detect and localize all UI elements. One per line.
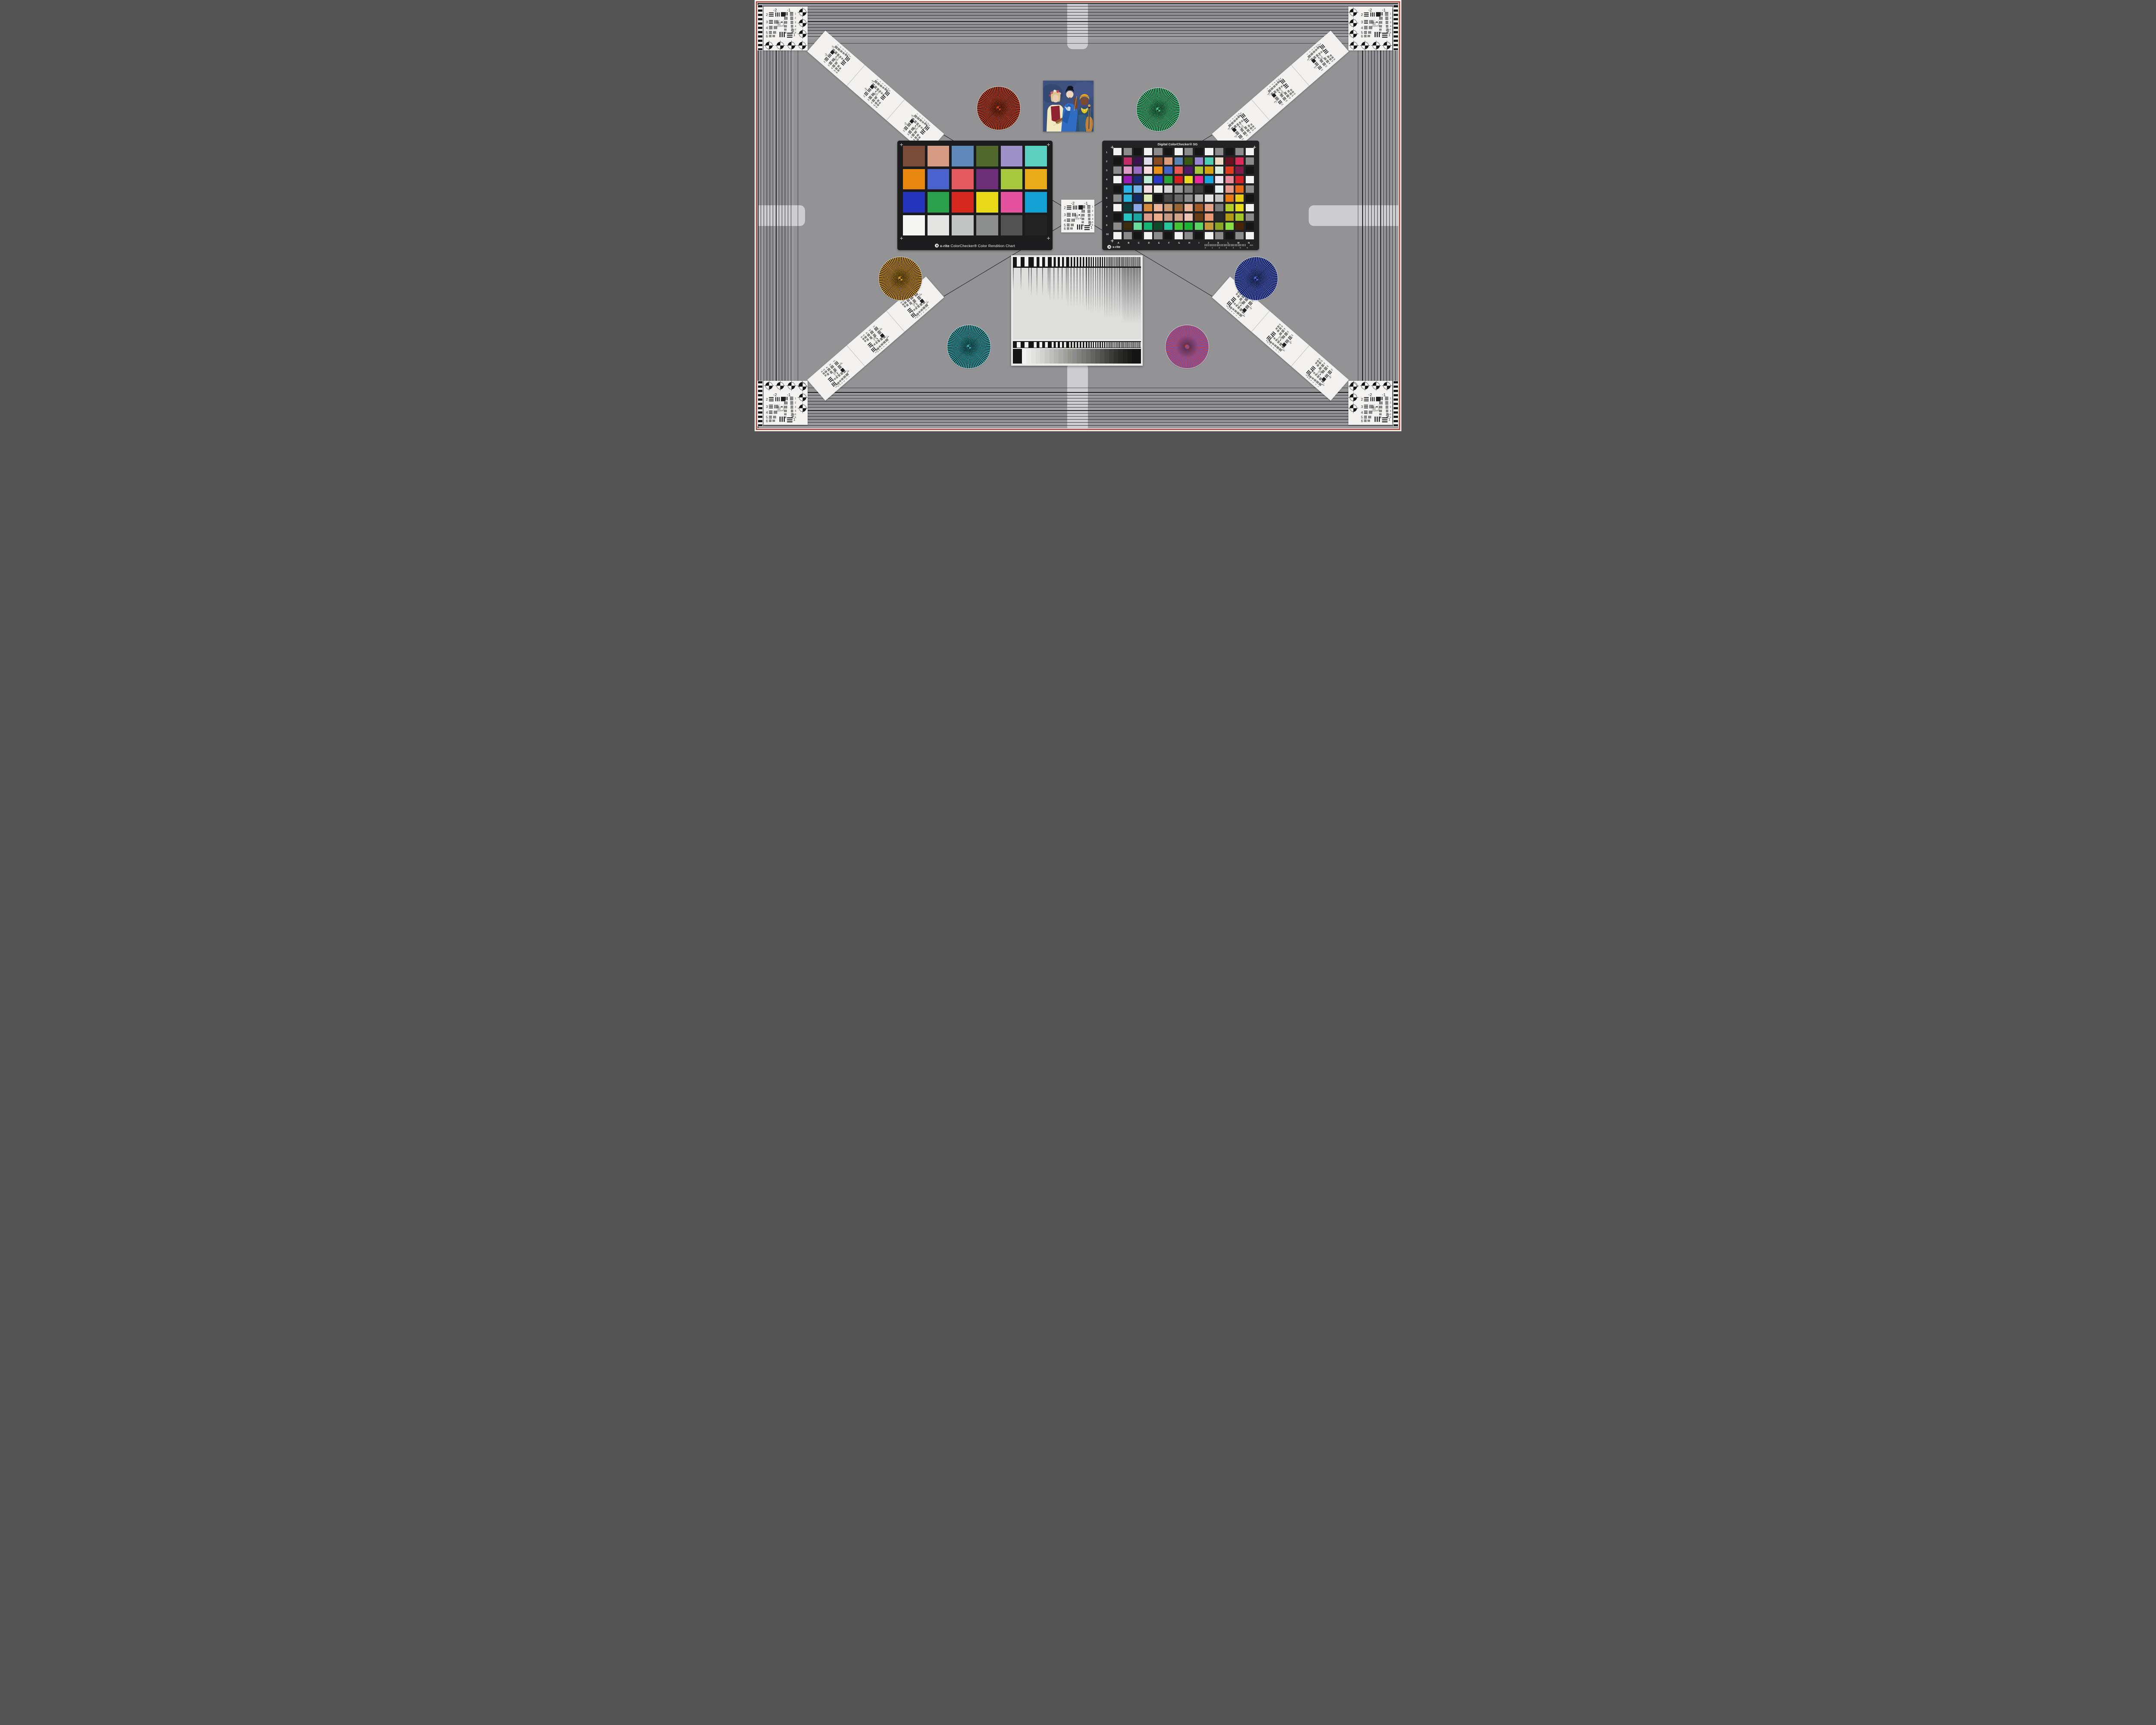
gray-step: [1054, 349, 1059, 364]
sg-color-patch: [1144, 223, 1152, 230]
color-patch: [1001, 146, 1023, 166]
sg-color-patch: [1164, 166, 1172, 174]
colorchecker-title-text: ColorChecker® Color Rendition Chart: [951, 244, 1015, 248]
sg-ruler-number: 6: [1247, 247, 1248, 249]
sg-color-patch: [1225, 185, 1234, 193]
color-patch: [976, 146, 998, 166]
color-patch: [952, 146, 974, 166]
gray-step: [1123, 349, 1128, 364]
sg-color-patch: [1144, 204, 1152, 211]
teal-siemens-star: [947, 325, 990, 368]
sg-color-patch: [1215, 194, 1223, 202]
sg-row-label: 2: [1106, 160, 1109, 163]
sg-color-patch: [1124, 204, 1132, 211]
fiducial-quadrant-circle: [1382, 381, 1392, 391]
corner-ruler-top-right: [1393, 5, 1398, 50]
fiducial-quadrant-circle: [787, 381, 796, 391]
sg-color-patch: [1225, 194, 1234, 202]
sg-color-patch: [1205, 176, 1213, 183]
sg-color-patch: [1195, 176, 1203, 183]
sg-color-patch: [1144, 194, 1152, 202]
fiducial-quadrant-circle: [775, 41, 785, 50]
sg-color-patch: [1246, 194, 1254, 202]
grayscale-step-wedge: [1013, 349, 1141, 364]
sg-color-patch: [1235, 185, 1244, 193]
sg-color-patch: [1215, 176, 1223, 183]
sg-color-patch: [1185, 176, 1193, 183]
sg-color-patch: [1134, 194, 1142, 202]
sg-color-patch: [1164, 204, 1172, 211]
sg-color-patch: [1205, 166, 1213, 174]
sg-color-patch: [1246, 157, 1254, 165]
sg-color-patch: [1235, 204, 1244, 211]
sg-color-patch: [1215, 166, 1223, 174]
xrite-brand: x-rite: [940, 244, 950, 248]
sg-color-patch: [1175, 232, 1183, 239]
fiducial-quadrant-circle: [1348, 392, 1358, 402]
red-blue-siemens-star: [1166, 325, 1209, 368]
fiducial-quadrant-circle: [787, 41, 796, 50]
sg-color-patch: [1164, 232, 1172, 239]
color-patch: [903, 146, 925, 166]
sg-color-patch: [1124, 213, 1132, 221]
sg-color-patch: [1195, 223, 1203, 230]
sg-color-patch: [1205, 157, 1213, 165]
fiducial-quadrant-circle: [1371, 41, 1381, 50]
sg-color-patch: [1134, 232, 1142, 239]
color-patch: [903, 169, 925, 190]
sg-color-patch: [1154, 166, 1162, 174]
sg-color-patch: [1124, 176, 1132, 183]
xrite-logo-icon: [935, 244, 939, 248]
sg-ruler-unit: mm: [1250, 244, 1253, 246]
sweep-bar-segment: [1123, 257, 1141, 267]
color-patch: [928, 215, 950, 236]
sg-color-patch: [1195, 185, 1203, 193]
sg-col-label: D: [1148, 242, 1150, 245]
sg-color-patch: [1164, 176, 1172, 183]
sg-color-patch: [1113, 157, 1122, 165]
sg-row-label: 5: [1106, 188, 1109, 190]
color-patch: [928, 169, 950, 190]
sg-color-patch: [1215, 213, 1223, 221]
sg-brand: x-rite: [1107, 245, 1120, 249]
sg-color-patch: [1113, 166, 1122, 174]
sg-color-patch: [1195, 157, 1203, 165]
sg-color-patch: [1113, 232, 1122, 239]
sg-color-patch: [1164, 185, 1172, 193]
gray-step: [1091, 349, 1095, 364]
sg-color-patch: [1235, 223, 1244, 230]
sg-color-patch: [1164, 148, 1172, 155]
sg-color-patch: [1124, 185, 1132, 193]
border-lines-left: [758, 3, 794, 428]
sg-color-patch: [1113, 223, 1122, 230]
navy-siemens-star: [1235, 257, 1278, 300]
sg-color-patch: [1195, 166, 1203, 174]
color-patch: [952, 215, 974, 236]
sg-color-patch: [1175, 166, 1183, 174]
fiducial-quadrant-circle: [1348, 7, 1358, 17]
sg-color-patch: [1195, 194, 1203, 202]
gray-step: [1022, 349, 1027, 364]
sweep-bars-bottom: [1013, 341, 1141, 348]
sweep-bar-segment: [1086, 257, 1104, 267]
sg-color-patch: [1113, 148, 1122, 155]
sg-color-patch: [1235, 213, 1244, 221]
sweep-gradient-segment: [1086, 268, 1104, 339]
sweep-bar-segment: [1050, 257, 1068, 267]
sg-color-patch: [1205, 213, 1213, 221]
gray-step: [1128, 349, 1132, 364]
fiducial-quadrant-circle: [798, 392, 808, 402]
fiducial-quadrant-circle: [1349, 41, 1359, 50]
colorchecker-sg: Digital ColorChecker® SG 12345678910 ABC…: [1102, 141, 1259, 250]
sweep-bar-segment: [1123, 342, 1141, 348]
gray-step: [1086, 349, 1091, 364]
sg-color-patch: [1175, 204, 1183, 211]
sg-color-patch: [1225, 166, 1234, 174]
sg-color-patch: [1185, 232, 1193, 239]
gray-step: [1068, 349, 1072, 364]
sg-row-label: 9: [1106, 224, 1109, 227]
sweep-gradient-segment: [1031, 268, 1049, 339]
sg-color-patch: [1195, 232, 1203, 239]
chart-field: -2 -1 2: [758, 3, 1398, 428]
sg-row-label: 8: [1106, 215, 1109, 218]
sweep-bar-segment: [1031, 342, 1049, 348]
sg-patches: [1113, 148, 1254, 239]
sweep-bar-segment: [1068, 257, 1086, 267]
fiducial-quadrant-circle: [1348, 29, 1358, 39]
color-patch: [952, 169, 974, 190]
sg-color-patch: [1113, 213, 1122, 221]
sg-color-patch: [1246, 223, 1254, 230]
sg-color-patch: [1205, 204, 1213, 211]
sg-color-patch: [1134, 166, 1142, 174]
sg-row-label: 7: [1106, 206, 1109, 209]
sg-col-label: B: [1128, 242, 1129, 245]
sweep-bar-segment: [1050, 342, 1068, 348]
sg-color-patch: [1235, 176, 1244, 183]
color-patch: [976, 192, 998, 213]
gray-step: [1050, 349, 1054, 364]
border-lines-top: [758, 3, 1398, 39]
sg-color-patch: [1124, 223, 1132, 230]
fiducial-quadrant-circle: [798, 7, 808, 17]
sg-color-patch: [1225, 148, 1234, 155]
gray-step: [1077, 349, 1081, 364]
sg-color-patch: [1144, 157, 1152, 165]
sg-color-patch: [1175, 185, 1183, 193]
sg-color-patch: [1246, 204, 1254, 211]
sg-color-patch: [1134, 176, 1142, 183]
corner-ruler-bottom-left: [758, 381, 763, 427]
sweep-gradient-segment: [1050, 268, 1068, 339]
sg-color-patch: [1185, 185, 1193, 193]
sg-color-patch: [1164, 223, 1172, 230]
sg-color-patch: [1124, 232, 1132, 239]
sg-color-patch: [1154, 232, 1162, 239]
sg-color-patch: [1205, 148, 1213, 155]
sg-color-patch: [1113, 194, 1122, 202]
sg-color-patch: [1246, 185, 1254, 193]
resolution-target-corner-tl: [764, 6, 808, 50]
gray-step: [1040, 349, 1045, 364]
fiducial-quadrant-circle: [1348, 403, 1358, 413]
gray-step: [1031, 349, 1036, 364]
sg-color-patch: [1134, 185, 1142, 193]
colorchecker-patches: [903, 146, 1047, 235]
sweep-bar-segment: [1068, 342, 1086, 348]
color-patch: [1001, 215, 1023, 236]
sg-ruler-number: 5: [1240, 247, 1241, 249]
fiducial-quadrant-circle: [1348, 18, 1358, 28]
red-siemens-star: [977, 87, 1020, 130]
sg-color-patch: [1124, 148, 1132, 155]
sg-color-patch: [1144, 213, 1152, 221]
sg-color-patch: [1164, 213, 1172, 221]
gray-step: [1059, 349, 1063, 364]
sg-color-patch: [1246, 148, 1254, 155]
sweep-gradient-segment: [1104, 268, 1122, 339]
sg-color-patch: [1225, 204, 1234, 211]
sg-col-label: I: [1199, 242, 1200, 245]
sg-color-patch: [1235, 232, 1244, 239]
gray-step: [1100, 349, 1105, 364]
color-patch: [1001, 192, 1023, 213]
sg-col-label: C: [1138, 242, 1140, 245]
sg-color-patch: [1113, 185, 1122, 193]
sg-color-patch: [1235, 157, 1244, 165]
sg-color-patch: [1134, 204, 1142, 211]
sg-ruler-number: 2: [1219, 247, 1220, 249]
fiducial-quadrant-circle: [1371, 381, 1381, 391]
sweep-gradient-segment: [1013, 268, 1031, 339]
sg-row-labels: 12345678910: [1106, 148, 1109, 239]
resolution-target-corner-tr: [1348, 6, 1392, 50]
sg-row-label: 6: [1106, 197, 1109, 200]
sg-col-label: G: [1178, 242, 1180, 245]
sweep-bar-segment: [1031, 257, 1049, 267]
sg-color-patch: [1185, 166, 1193, 174]
sg-color-patch: [1215, 223, 1223, 230]
sg-color-patch: [1154, 185, 1162, 193]
fiducial-quadrant-circle: [1382, 41, 1392, 50]
sg-color-patch: [1205, 223, 1213, 230]
sg-color-patch: [1235, 194, 1244, 202]
resolution-target-corner-bl: [764, 381, 808, 425]
sweep-gradient-segment: [1068, 268, 1086, 339]
resolution-target-center: [1061, 200, 1094, 232]
sg-color-patch: [1225, 223, 1234, 230]
sg-color-patch: [1124, 166, 1132, 174]
sg-color-patch: [1164, 194, 1172, 202]
sg-row-label: 3: [1106, 169, 1109, 172]
border-lines-bottom: [758, 392, 1398, 428]
sg-color-patch: [1185, 148, 1193, 155]
gray-step: [1114, 349, 1119, 364]
sg-color-patch: [1175, 176, 1183, 183]
sg-color-patch: [1235, 148, 1244, 155]
corner-ruler-bottom-right: [1393, 381, 1398, 427]
sg-color-patch: [1225, 232, 1234, 239]
sg-row-label: 10: [1106, 233, 1109, 236]
color-patch: [976, 169, 998, 190]
resolution-target-corner-br: [1348, 381, 1392, 425]
sg-color-patch: [1185, 213, 1193, 221]
sg-color-patch: [1205, 185, 1213, 193]
color-patch: [928, 146, 950, 166]
sg-color-patch: [1185, 204, 1193, 211]
sg-color-patch: [1154, 148, 1162, 155]
sg-color-patch: [1154, 204, 1162, 211]
gray-step: [1104, 349, 1109, 364]
gray-step: [1081, 349, 1086, 364]
corner-ruler-top-left: [758, 5, 763, 50]
gray-step: [1072, 349, 1077, 364]
sg-color-patch: [1175, 148, 1183, 155]
sg-brand-text: x-rite: [1112, 245, 1120, 249]
fiducial-quadrant-circle: [1360, 381, 1370, 391]
gray-step: [1045, 349, 1050, 364]
gray-step: [1109, 349, 1114, 364]
xrite-logo-icon: [1107, 245, 1111, 249]
sg-color-patch: [1134, 213, 1142, 221]
colorchecker-classic: x-rite ColorChecker® Color Rendition Cha…: [897, 141, 1053, 250]
sg-color-patch: [1195, 148, 1203, 155]
fiducial-quadrant-circle: [798, 29, 808, 39]
sg-color-patch: [1154, 157, 1162, 165]
sg-color-patch: [1175, 223, 1183, 230]
sweep-bar-segment: [1013, 257, 1031, 267]
sg-color-patch: [1144, 176, 1152, 183]
sg-color-patch: [1215, 157, 1223, 165]
fiducial-quadrant-circle: [775, 381, 785, 391]
sg-color-patch: [1144, 148, 1152, 155]
sg-col-label: A: [1118, 242, 1119, 245]
sweep-bar-segment: [1086, 342, 1104, 348]
color-patch: [976, 215, 998, 236]
sg-color-patch: [1113, 176, 1122, 183]
sg-color-patch: [1144, 166, 1152, 174]
sg-mm-ruler: 0123456 mm: [1205, 244, 1253, 249]
sweep-gradient-body: [1013, 268, 1141, 339]
color-patch: [1025, 215, 1047, 236]
amber-siemens-star: [879, 257, 922, 300]
gray-step: [1118, 349, 1123, 364]
sg-color-patch: [1246, 213, 1254, 221]
sg-color-patch: [1134, 148, 1142, 155]
color-patch: [1025, 169, 1047, 190]
sweep-bar-segment: [1013, 342, 1031, 348]
green-siemens-star: [1137, 88, 1180, 131]
fiducial-quadrant-circle: [798, 18, 808, 28]
sg-color-patch: [1195, 204, 1203, 211]
sg-color-patch: [1134, 157, 1142, 165]
color-patch: [903, 192, 925, 213]
sg-color-patch: [1215, 232, 1223, 239]
sg-color-patch: [1124, 194, 1132, 202]
color-patch: [1025, 192, 1047, 213]
sg-title: Digital ColorChecker® SG: [1102, 142, 1253, 146]
sg-color-patch: [1144, 232, 1152, 239]
sweep-bar-segment: [1104, 342, 1122, 348]
sg-color-patch: [1154, 223, 1162, 230]
sg-color-patch: [1246, 232, 1254, 239]
sg-col-label: E: [1158, 242, 1160, 245]
sg-color-patch: [1185, 157, 1193, 165]
sg-color-patch: [1175, 213, 1183, 221]
sg-ruler-number: 1: [1212, 247, 1213, 249]
sg-color-patch: [1185, 223, 1193, 230]
color-patch: [952, 192, 974, 213]
color-patch: [1025, 146, 1047, 166]
sg-row-label: 4: [1106, 179, 1109, 181]
sg-color-patch: [1246, 166, 1254, 174]
sg-color-patch: [1134, 223, 1142, 230]
fiducial-quadrant-circle: [798, 403, 808, 413]
sg-color-patch: [1154, 213, 1162, 221]
sg-color-patch: [1144, 185, 1152, 193]
border-lines-right: [1362, 3, 1398, 428]
sg-color-patch: [1225, 176, 1234, 183]
gray-step: [1026, 349, 1031, 364]
sg-color-patch: [1225, 157, 1234, 165]
sg-color-patch: [1215, 204, 1223, 211]
sg-col-label: H: [1188, 242, 1190, 245]
fiducial-quadrant-circle: [764, 381, 774, 391]
sweep-bar-segment: [1104, 257, 1122, 267]
sg-row-label: 1: [1106, 151, 1109, 154]
gray-step: [1036, 349, 1040, 364]
sg-color-patch: [1195, 213, 1203, 221]
sg-color-patch: [1175, 194, 1183, 202]
test-chart-scene: -2 -1 2: [755, 0, 1401, 431]
sg-color-patch: [1225, 213, 1234, 221]
portrait-photo: [1043, 81, 1094, 132]
gray-step: [1063, 349, 1068, 364]
sg-ruler-number: 0: [1205, 247, 1206, 249]
fiducial-quadrant-circle: [1348, 382, 1358, 392]
sg-col-label: F: [1168, 242, 1169, 245]
sg-color-patch: [1164, 157, 1172, 165]
colorchecker-title: x-rite ColorChecker® Color Rendition Cha…: [897, 244, 1053, 248]
sg-color-patch: [1205, 232, 1213, 239]
sweep-gradient-segment: [1123, 268, 1141, 339]
fiducial-quadrant-circle: [1360, 41, 1370, 50]
sg-color-patch: [1124, 157, 1132, 165]
color-patch: [903, 215, 925, 236]
color-patch: [1001, 169, 1023, 190]
fiducial-quadrant-circle: [764, 41, 774, 50]
sg-color-patch: [1154, 176, 1162, 183]
sg-color-patch: [1175, 157, 1183, 165]
fiducial-quadrant-circle: [798, 382, 808, 392]
frequency-sweep-chart: [1011, 255, 1143, 366]
sg-color-patch: [1215, 148, 1223, 155]
sg-color-patch: [1215, 185, 1223, 193]
sweep-bars-top: [1013, 257, 1141, 268]
sg-ruler-number: 4: [1233, 247, 1234, 249]
fiducial-quadrant-circle: [797, 41, 807, 50]
sg-color-patch: [1185, 194, 1193, 202]
gray-step: [1095, 349, 1100, 364]
sg-ruler-number: 3: [1226, 247, 1227, 249]
sg-color-patch: [1113, 204, 1122, 211]
sg-color-patch: [1235, 166, 1244, 174]
sg-color-patch: [1246, 176, 1254, 183]
